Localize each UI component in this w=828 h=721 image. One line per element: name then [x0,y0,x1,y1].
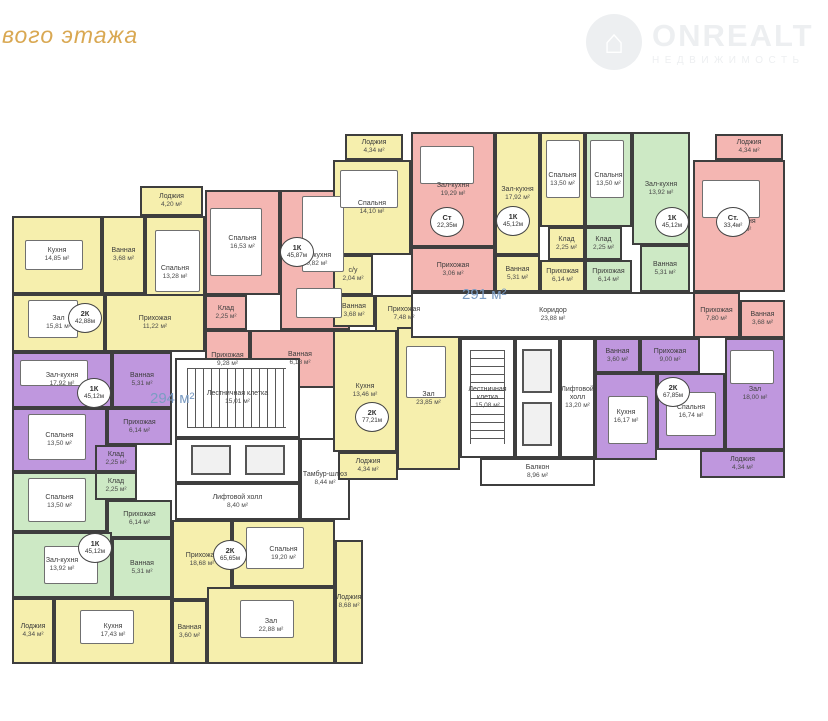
apartment-badge: 1К45,12м [655,207,689,237]
room-label: Лоджия [21,623,46,631]
room-label: Ванная [606,348,630,356]
room-label: Зал-кухня [645,181,677,189]
room-label: Ванная [130,560,154,568]
room-area: 3,68 м² [752,319,773,326]
room-area: 4,34 м² [22,631,43,638]
room: Клад2,25 м² [548,227,585,260]
badge-area: 45,12м [85,549,105,556]
room-area: 22,88 м² [259,626,284,633]
room-label: Коридор [539,307,567,315]
badge-area: 77,21м [362,418,382,425]
room: Лоджия4,34 м² [700,450,785,478]
room-label: Спальня [594,172,622,180]
room-label: Ванная [178,624,202,632]
furniture [155,230,200,292]
room: Зал-кухня17,92 м² [495,132,540,255]
room-area: 9,28 м² [217,360,238,367]
room-area: 17,92 м² [50,380,75,387]
room-label: с/у [349,267,358,275]
room-area: 2,04 м² [342,275,363,282]
apartment-badge: 2К67,85м [656,377,690,407]
room-area: 13,50 м² [550,180,575,187]
furniture [296,288,342,318]
room-area: 18,00 м² [743,394,768,401]
room: Кухня13,46 м² [333,330,397,452]
room-label: Ванная [751,311,775,319]
room: Лоджия8,68 м² [335,540,363,664]
apartment-badge: 1К45,12м [78,533,112,563]
apartment-badge: Ст.33,4м² [716,207,750,237]
room-label: Клад [108,451,124,459]
apartment-badge: Ст22,35м [430,207,464,237]
room-label: Зал-кухня [501,186,533,194]
room-area: 9,00 м² [659,356,680,363]
room: Ванная5,31 м² [112,538,172,598]
room-area: 2,25 м² [556,244,577,251]
room-label: Кухня [104,623,123,631]
room-label: Зал-кухня [46,372,78,380]
room: Прихожая6,14 м² [107,500,172,538]
room-label: Лестничная клетка [207,390,268,398]
room-label: Ванная [112,247,136,255]
room-label: Прихожая [654,348,686,356]
room: Балкон8,96 м² [480,458,595,486]
room-area: 3,68 м² [343,311,364,318]
room-label: Прихожая [123,419,155,427]
room-label: Лифтовой холл [561,386,594,402]
room-area: 13,50 м² [47,440,72,447]
room-label: Зал-кухня [46,557,78,565]
room-label: Зал [52,315,64,323]
room-area: 3,68 м² [113,255,134,262]
room-label: Лоджия [356,458,381,466]
floor-plan: вого этажа ⌂ ONREALT НЕДВИЖИМОСТЬ Лоджия… [0,0,828,721]
furniture [590,140,624,198]
building-area-label: 291 м² [462,286,507,303]
room-label: Зал [422,391,434,399]
room-area: 13,28 м² [163,273,188,280]
room-label: Прихожая [139,315,171,323]
room-area: 5,31 м² [131,568,152,575]
room: Зал22,88 м² [207,587,335,664]
room-area: 6,14 м² [552,276,573,283]
room-area: 16,74 м² [679,412,704,419]
room-area: 6,14 м² [129,519,150,526]
apartment-badge: 2К77,21м [355,402,389,432]
room-area: 13,50 м² [47,502,72,509]
apartment-badge: 1К45,12м [496,206,530,236]
room-area: 5,31 м² [507,274,528,281]
room-label: Спальня [45,494,73,502]
room-label: Прихожая [700,307,732,315]
room-area: 3,60 м² [607,356,628,363]
badge-area: 33,4м² [724,223,743,230]
room: Лоджия4,20 м² [140,186,203,216]
room-area: 5,31 м² [131,380,152,387]
room-area: 15,01 м² [225,398,250,405]
room-label: Прихожая [211,352,243,360]
room-area: 7,48 м² [393,314,414,321]
room-label: Кухня [617,409,636,417]
room-label: Зал-кухня [437,182,469,190]
room-label: Лоджия [730,456,755,464]
room: Ванная3,60 м² [595,338,640,373]
room-area: 16,53 м² [230,243,255,250]
room-label: Ванная [506,266,530,274]
room-area: 18,68 м² [190,560,215,567]
room-label: Прихожая [123,511,155,519]
building-area-label: 294 м² [150,390,195,407]
room-area: 19,29 м² [441,190,466,197]
apartment-badge: 2К65,65м [213,540,247,570]
room-area: 11,22 м² [143,323,167,330]
room-label: Лоджия [159,193,184,201]
room-area: 13,50 м² [596,180,621,187]
room-area: 8,44 м² [314,479,335,486]
badge-area: 45,12м [662,223,682,230]
room-area: 6,14 м² [598,276,619,283]
apartment-badge: 1К45,12м [77,378,111,408]
room: Коридор23,88 м² [411,292,695,338]
apartment-badge: 2К42,88м [68,303,102,333]
room-label: Лоджия [362,139,387,147]
room [175,438,300,483]
badge-area: 45,12м [84,394,104,401]
badge-area: 67,85м [663,393,683,400]
room-area: 17,43 м² [101,631,126,638]
room-label: Спальня [161,265,189,273]
room-label: Прихожая [592,268,624,276]
room-area: 13,92 м² [649,189,674,196]
room-area: 4,34 м² [732,464,753,471]
badge-area: 45,87м [287,253,307,260]
room-label: Лоджия [337,594,362,602]
room-area: 4,34 м² [363,147,384,154]
room-area: 2,25 м² [593,244,614,251]
room-area: 23,85 м² [416,399,441,406]
furniture [730,350,774,384]
badge-area: 42,88м [75,319,95,326]
room-area: 8,68 м² [338,602,359,609]
room-area: 4,34 м² [738,147,759,154]
room: Лестничная клетка15,08 м² [460,338,515,458]
room-label: Лоджия [737,139,762,147]
room-area: 2,25 м² [105,486,126,493]
room-label: Кухня [48,247,67,255]
room-area: 4,34 м² [357,466,378,473]
room-area: 15,81 м² [46,323,71,330]
room-area: 16,17 м² [614,417,639,424]
room-label: Спальня [548,172,576,180]
room-label: Ванная [130,372,154,380]
room: Клад2,25 м² [585,227,622,260]
plan-canvas: Лоджия4,20 м²Кухня14,85 м²Ванная3,68 м²С… [0,0,828,721]
room-label: Тамбур-шлюз [303,471,347,479]
room: Лоджия4,34 м² [345,134,403,160]
room-label: Зал [749,386,761,394]
room-area: 3,06 м² [442,270,463,277]
room-label: Ванная [342,303,366,311]
room-label: Клад [218,305,234,313]
room-area: 8,96 м² [527,472,548,479]
room-area: 19,20 м² [271,554,296,561]
room-area: 14,85 м² [45,255,70,262]
room-area: 17,92 м² [505,194,530,201]
room-area: 13,46 м² [353,391,378,398]
room: Прихожая6,14 м² [540,260,585,292]
room [515,338,560,458]
badge-area: 22,35м [437,223,457,230]
room: Лоджия4,34 м² [12,598,54,664]
room: Клад2,25 м² [205,295,247,330]
room-area: 4,20 м² [161,201,182,208]
room-area: 6,14 м² [129,427,150,434]
room-label: Лестничная клетка [462,386,513,402]
room: Ванная5,31 м² [640,245,690,292]
room-area: 13,92 м² [50,565,75,572]
room-area: 13,20 м² [565,402,590,409]
room-label: Спальня [228,235,256,243]
room-label: Прихожая [546,268,578,276]
badge-area: 45,12м [503,222,523,229]
room-area: 8,40 м² [227,502,248,509]
room-label: Кухня [356,383,375,391]
room-area: 7,80 м² [706,315,727,322]
room-area: 23,88 м² [541,315,566,322]
room: Ванная3,60 м² [172,600,207,664]
room: Лифтовой холл13,20 м² [560,338,595,458]
room: Прихожая7,80 м² [693,292,740,338]
room-label: Зал [265,618,277,626]
room: Клад2,25 м² [95,445,137,472]
room-area: 15,08 м² [475,402,500,409]
room-label: Клад [558,236,574,244]
room-label: Клад [108,478,124,486]
apartment-badge: 1К45,87м [280,237,314,267]
room: Лифтовой холл8,40 м² [175,483,300,520]
room: Ванная3,68 м² [102,216,145,294]
room-area: 2,25 м² [215,313,236,320]
room-label: Ванная [653,261,677,269]
room: Прихожая11,22 м² [105,294,205,352]
room: Прихожая6,14 м² [585,260,632,292]
badge-area: 65,65м [220,556,240,563]
room-label: Ванная [288,351,312,359]
furniture [546,140,580,198]
room-label: Балкон [526,464,549,472]
room-label: Спальня [358,200,386,208]
room-label: Клад [595,236,611,244]
room: Ванная3,68 м² [740,300,785,338]
room: Прихожая9,00 м² [640,338,700,373]
room-label: Прихожая [437,262,469,270]
room-area: 3,60 м² [179,632,200,639]
room-area: 5,31 м² [654,269,675,276]
room-label: Прихожая [388,306,420,314]
room-label: Спальня [269,546,297,554]
room: Прихожая6,14 м² [107,408,172,445]
room-label: Лифтовой холл [213,494,263,502]
room-label: Спальня [45,432,73,440]
furniture [420,146,474,184]
room-area: 6,18 м² [289,359,310,366]
room: Лоджия4,34 м² [715,134,783,160]
room-area: 2,25 м² [105,459,126,466]
room-area: 14,10 м² [360,208,385,215]
room: Клад2,25 м² [95,472,137,500]
room: Кухня17,43 м² [54,598,172,664]
